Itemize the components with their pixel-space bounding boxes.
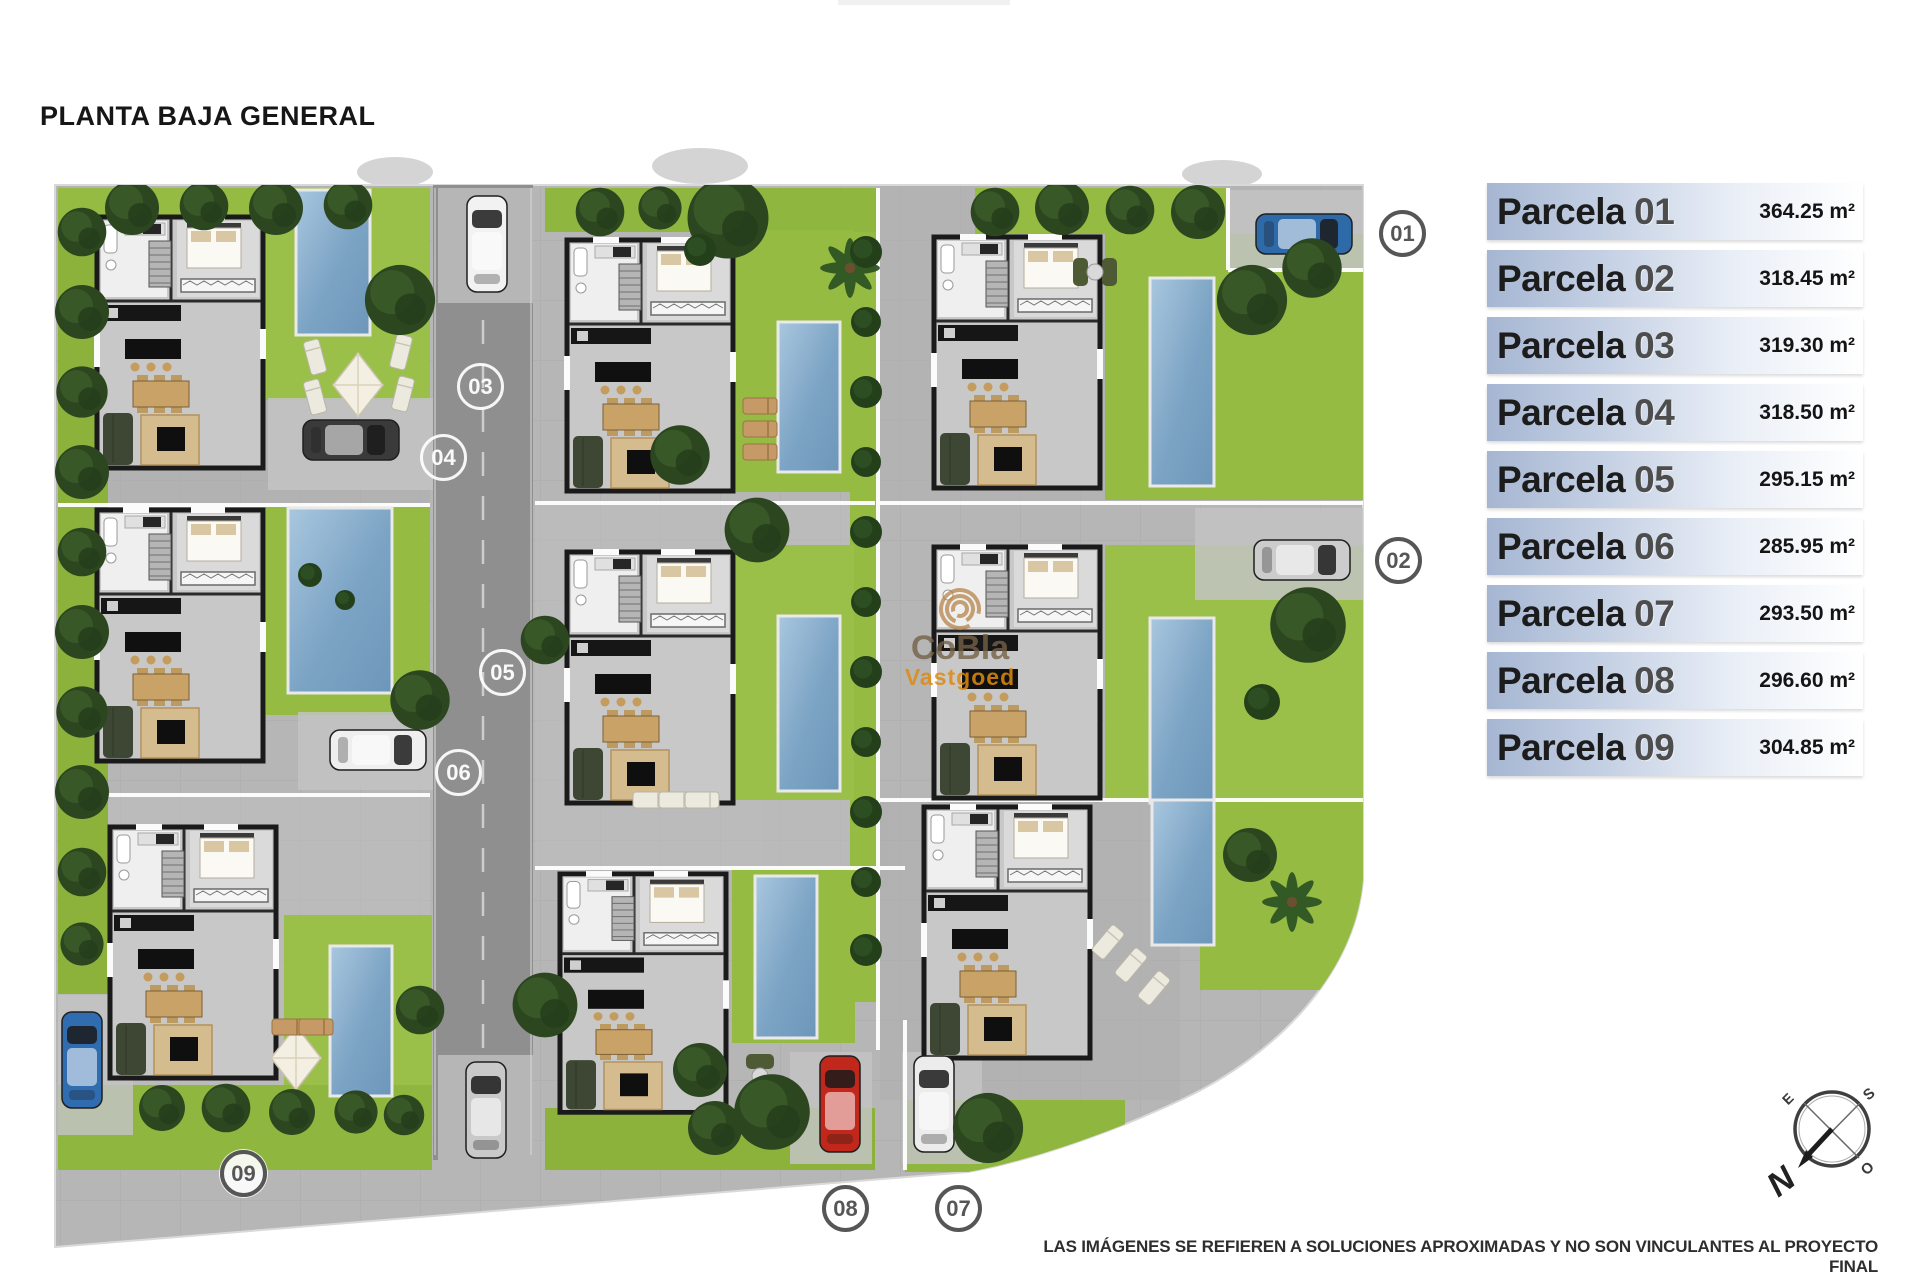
legend-parcel-area: 364.25 m² bbox=[1759, 200, 1855, 224]
plot-marker-09: 09 bbox=[220, 1150, 267, 1197]
legend-parcel-name: Parcela08 bbox=[1497, 660, 1674, 702]
legend-row-parcela-02: Parcela02 318.45 m² bbox=[1487, 250, 1863, 307]
legend-row-parcela-06: Parcela06 285.95 m² bbox=[1487, 518, 1863, 575]
plot-marker-05: 05 bbox=[479, 649, 526, 696]
plot-marker-04: 04 bbox=[420, 434, 467, 481]
legend-row-parcela-05: Parcela05 295.15 m² bbox=[1487, 451, 1863, 508]
legend-parcel-word: Parcela bbox=[1497, 459, 1625, 500]
legend-parcel-word: Parcela bbox=[1497, 593, 1625, 634]
compass-east-label: E bbox=[1779, 1090, 1797, 1108]
legend-parcel-area: 285.95 m² bbox=[1759, 535, 1855, 559]
legend-row-parcela-03: Parcela03 319.30 m² bbox=[1487, 317, 1863, 374]
legend-parcel-number: 03 bbox=[1634, 325, 1674, 366]
legend-parcel-area: 318.45 m² bbox=[1759, 267, 1855, 291]
compass-south-label: S bbox=[1860, 1085, 1879, 1104]
site-plan-page: PLANTA BAJA GENERAL bbox=[0, 0, 1920, 1280]
legend-parcel-name: Parcela06 bbox=[1497, 526, 1674, 568]
tree-shadows bbox=[357, 148, 1262, 188]
legend-parcel-word: Parcela bbox=[1497, 660, 1625, 701]
plot-marker-07: 07 bbox=[935, 1185, 982, 1232]
disclaimer-text: LAS IMÁGENES SE REFIEREN A SOLUCIONES AP… bbox=[1038, 1237, 1878, 1277]
plot-marker-06: 06 bbox=[435, 749, 482, 796]
compass-west-label: O bbox=[1858, 1158, 1879, 1179]
legend-parcel-word: Parcela bbox=[1497, 325, 1625, 366]
legend-parcel-area: 304.85 m² bbox=[1759, 736, 1855, 760]
legend-parcel-name: Parcela05 bbox=[1497, 459, 1674, 501]
legend-parcel-word: Parcela bbox=[1497, 526, 1625, 567]
legend-parcel-name: Parcela09 bbox=[1497, 727, 1674, 769]
legend-parcel-number: 06 bbox=[1634, 526, 1674, 567]
legend-parcel-number: 08 bbox=[1634, 660, 1674, 701]
legend-parcel-name: Parcela01 bbox=[1497, 191, 1674, 233]
plot-marker-02: 02 bbox=[1375, 537, 1422, 584]
legend-row-parcela-01: Parcela01 364.25 m² bbox=[1487, 183, 1863, 240]
legend-parcel-number: 01 bbox=[1634, 191, 1674, 232]
legend-row-parcela-09: Parcela09 304.85 m² bbox=[1487, 719, 1863, 776]
compass-rose: E S O N bbox=[1762, 1072, 1902, 1212]
legend-parcel-area: 293.50 m² bbox=[1759, 602, 1855, 626]
legend-parcel-word: Parcela bbox=[1497, 727, 1625, 768]
legend-parcel-area: 295.15 m² bbox=[1759, 468, 1855, 492]
legend-parcel-name: Parcela04 bbox=[1497, 392, 1674, 434]
legend-parcel-area: 296.60 m² bbox=[1759, 669, 1855, 693]
legend-parcel-name: Parcela02 bbox=[1497, 258, 1674, 300]
legend-parcel-number: 04 bbox=[1634, 392, 1674, 433]
legend-parcel-number: 07 bbox=[1634, 593, 1674, 634]
legend-row-parcela-08: Parcela08 296.60 m² bbox=[1487, 652, 1863, 709]
plot-marker-08: 08 bbox=[822, 1185, 869, 1232]
plot-marker-01: 01 bbox=[1379, 210, 1426, 257]
legend-parcel-word: Parcela bbox=[1497, 258, 1625, 299]
legend-parcel-name: Parcela07 bbox=[1497, 593, 1674, 635]
legend-parcel-area: 319.30 m² bbox=[1759, 334, 1855, 358]
legend-parcel-number: 09 bbox=[1634, 727, 1674, 768]
legend-parcel-number: 05 bbox=[1634, 459, 1674, 500]
plot-marker-03: 03 bbox=[457, 363, 504, 410]
legend-parcel-word: Parcela bbox=[1497, 392, 1625, 433]
legend-row-parcela-07: Parcela07 293.50 m² bbox=[1487, 585, 1863, 642]
compass-north-label: N bbox=[1762, 1158, 1804, 1204]
legend-row-parcela-04: Parcela04 318.50 m² bbox=[1487, 384, 1863, 441]
houses bbox=[94, 214, 1103, 1112]
legend-parcel-area: 318.50 m² bbox=[1759, 401, 1855, 425]
legend-parcel-word: Parcela bbox=[1497, 191, 1625, 232]
legend-parcel-number: 02 bbox=[1634, 258, 1674, 299]
legend-parcel-name: Parcela03 bbox=[1497, 325, 1674, 367]
